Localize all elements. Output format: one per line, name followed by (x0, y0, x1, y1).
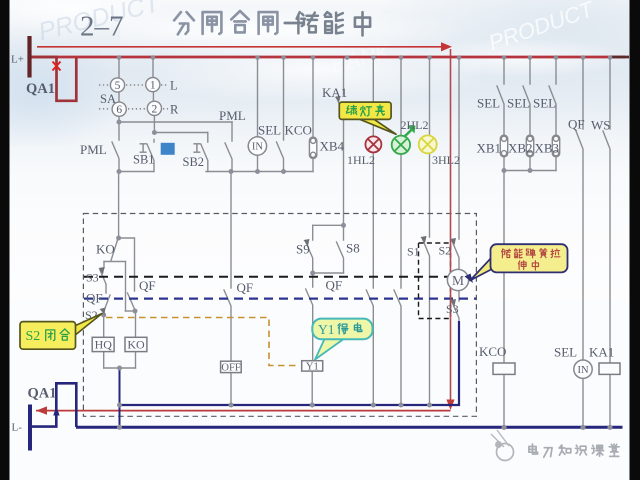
svg-text:M: M (452, 273, 464, 288)
svg-text:R: R (170, 103, 179, 117)
svg-text:SEL: SEL (554, 345, 577, 360)
svg-text:Y1: Y1 (306, 361, 319, 372)
svg-text:SA: SA (100, 92, 116, 106)
svg-text:S1: S1 (407, 245, 420, 259)
svg-text:L: L (170, 79, 178, 93)
svg-text:QF: QF (568, 117, 585, 132)
svg-text:KCO: KCO (479, 344, 506, 359)
svg-text:Y1: Y1 (318, 322, 335, 337)
svg-text:S2: S2 (26, 329, 41, 344)
svg-text:3HL2: 3HL2 (432, 153, 460, 167)
svg-text:S3: S3 (86, 271, 99, 285)
svg-text:1: 1 (150, 80, 156, 92)
svg-text:5: 5 (115, 80, 121, 92)
svg-text:SB1: SB1 (133, 153, 155, 167)
svg-text:S2: S2 (439, 244, 452, 258)
svg-text:S9: S9 (296, 242, 310, 257)
svg-text:XB4: XB4 (320, 139, 345, 154)
svg-text:QA1: QA1 (26, 81, 55, 97)
svg-text:SEL: SEL (258, 123, 281, 138)
svg-text:IN: IN (577, 365, 588, 376)
svg-text:QA1: QA1 (28, 386, 57, 402)
svg-text:S3: S3 (446, 302, 459, 316)
svg-text:SB2: SB2 (183, 155, 205, 169)
svg-text:QF: QF (237, 280, 254, 295)
svg-text:KO: KO (96, 242, 115, 257)
svg-text:PML: PML (80, 142, 107, 157)
svg-text:SEL: SEL (477, 96, 500, 111)
svg-text:L+: L+ (11, 54, 24, 66)
svg-text:PML: PML (219, 108, 246, 123)
svg-text:1HL2: 1HL2 (347, 153, 375, 167)
svg-text:IN: IN (252, 142, 263, 153)
svg-text:SEL: SEL (533, 96, 556, 111)
svg-text:KA1: KA1 (322, 85, 347, 100)
svg-text:S8: S8 (346, 241, 360, 256)
svg-text:2HL2: 2HL2 (401, 118, 429, 132)
svg-text:SEL: SEL (507, 96, 530, 111)
svg-text:2: 2 (152, 103, 158, 115)
svg-text:XB1: XB1 (477, 141, 502, 156)
svg-text:QF: QF (86, 291, 103, 306)
svg-text:2–7: 2–7 (80, 11, 124, 43)
svg-text:KA1: KA1 (589, 345, 614, 360)
svg-text:KO: KO (127, 338, 145, 352)
svg-text:WS: WS (591, 118, 611, 133)
svg-text:QF: QF (139, 278, 156, 293)
svg-text:XB2: XB2 (508, 141, 533, 156)
svg-text:OFF: OFF (221, 362, 240, 373)
svg-text:KCO: KCO (285, 123, 312, 138)
svg-text:XB3: XB3 (535, 141, 560, 156)
svg-text:QF: QF (326, 278, 343, 293)
svg-text:6: 6 (116, 104, 122, 116)
svg-text:L-: L- (12, 422, 23, 434)
svg-text:HQ: HQ (95, 338, 113, 352)
